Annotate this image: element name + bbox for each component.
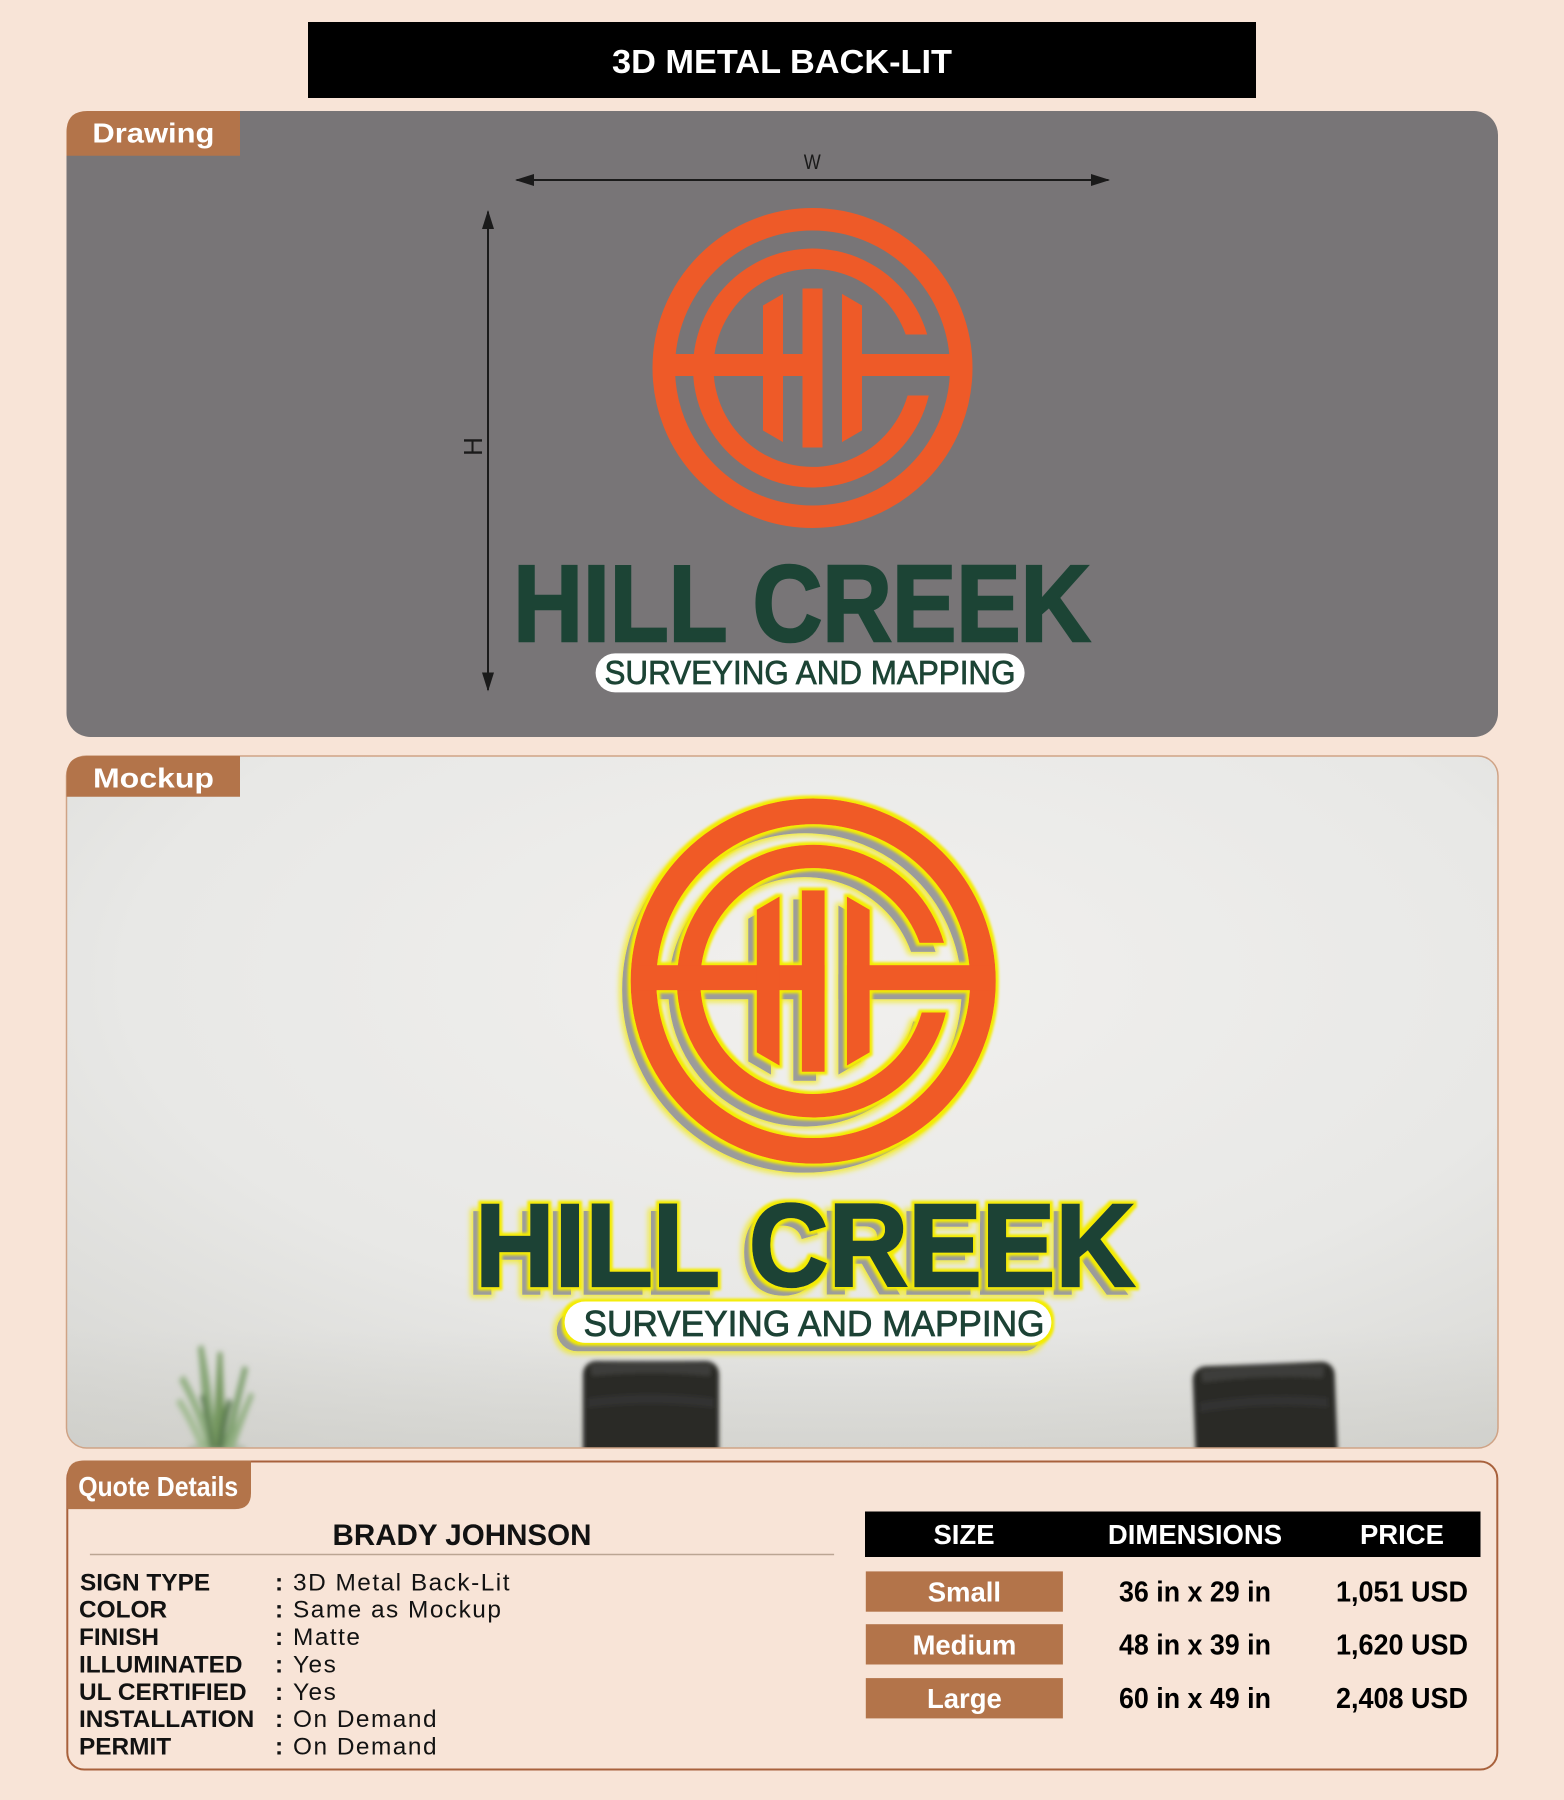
svg-text:H: H	[458, 437, 488, 456]
svg-text:SIZE: SIZE	[933, 1519, 994, 1550]
svg-text:1,051 USD: 1,051 USD	[1336, 1577, 1468, 1609]
svg-text::: :	[275, 1597, 283, 1624]
svg-text:PRICE: PRICE	[1360, 1519, 1444, 1550]
svg-text::: :	[275, 1706, 283, 1733]
svg-text:Mockup: Mockup	[93, 762, 214, 794]
svg-text:Large: Large	[927, 1683, 1002, 1714]
svg-text:Yes: Yes	[293, 1651, 337, 1678]
svg-text:On Demand: On Demand	[293, 1706, 438, 1733]
svg-text::: :	[275, 1679, 283, 1706]
svg-text::: :	[275, 1624, 283, 1651]
svg-text:DIMENSIONS: DIMENSIONS	[1108, 1519, 1282, 1550]
svg-text:3D METAL BACK-LIT: 3D METAL BACK-LIT	[612, 44, 953, 81]
svg-text:SURVEYING AND MAPPING: SURVEYING AND MAPPING	[584, 1303, 1045, 1344]
svg-text:Drawing: Drawing	[92, 116, 214, 148]
svg-text:2,408 USD: 2,408 USD	[1336, 1683, 1468, 1715]
svg-text:SURVEYING AND MAPPING: SURVEYING AND MAPPING	[605, 654, 1016, 691]
svg-text:HILL CREEK: HILL CREEK	[475, 1180, 1135, 1312]
svg-text:PERMIT: PERMIT	[79, 1734, 171, 1761]
svg-text:SIGN TYPE: SIGN TYPE	[80, 1569, 210, 1596]
svg-text:Medium: Medium	[912, 1629, 1016, 1660]
svg-text:ILLUMINATED: ILLUMINATED	[79, 1651, 242, 1678]
svg-text:HILL CREEK: HILL CREEK	[513, 543, 1090, 665]
svg-text:INSTALLATION: INSTALLATION	[79, 1706, 254, 1733]
svg-text::: :	[275, 1569, 283, 1596]
svg-text:Quote Details: Quote Details	[78, 1470, 238, 1502]
svg-text:36 in x 29 in: 36 in x 29 in	[1119, 1577, 1271, 1609]
svg-text:1,620 USD: 1,620 USD	[1336, 1629, 1468, 1661]
svg-text:Small: Small	[928, 1577, 1001, 1608]
svg-text:3D Metal Back-Lit: 3D Metal Back-Lit	[293, 1569, 511, 1596]
svg-text:W: W	[804, 150, 822, 174]
svg-text:On Demand: On Demand	[293, 1734, 438, 1761]
svg-text:Same as Mockup: Same as Mockup	[293, 1597, 502, 1624]
svg-text:BRADY JOHNSON: BRADY JOHNSON	[333, 1519, 592, 1552]
svg-text:UL CERTIFIED: UL CERTIFIED	[79, 1679, 247, 1706]
svg-text:48 in x 39 in: 48 in x 39 in	[1119, 1629, 1271, 1661]
svg-text:COLOR: COLOR	[79, 1597, 167, 1624]
svg-text:60 in x 49 in: 60 in x 49 in	[1119, 1683, 1271, 1715]
svg-text:Matte: Matte	[293, 1624, 362, 1651]
svg-text::: :	[275, 1651, 283, 1678]
svg-text:Yes: Yes	[293, 1679, 337, 1706]
svg-text:FINISH: FINISH	[79, 1624, 159, 1651]
svg-text::: :	[275, 1734, 283, 1761]
